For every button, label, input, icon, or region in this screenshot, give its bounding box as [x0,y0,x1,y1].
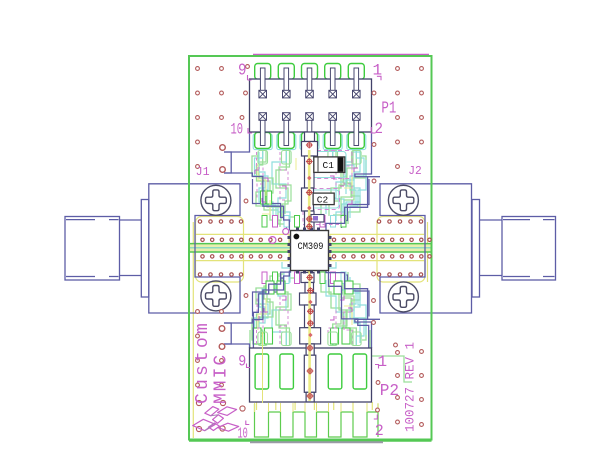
svg-text:10: 10 [231,121,244,139]
svg-text:Custom: Custom [193,320,213,404]
svg-text:10: 10 [238,426,248,443]
svg-text:C1: C1 [323,160,335,171]
svg-text:100727 REV 1: 100727 REV 1 [404,342,418,432]
svg-text:9: 9 [238,62,247,81]
svg-text:C2: C2 [317,195,329,206]
svg-text:2: 2 [375,120,384,138]
svg-text:J2: J2 [408,165,422,178]
svg-text:J1: J1 [196,166,210,179]
svg-text:MMIC: MMIC [212,353,232,404]
svg-text:P1: P1 [381,99,396,118]
svg-text:CM309: CM309 [298,241,324,253]
svg-text:P2: P2 [380,381,399,400]
svg-text:2: 2 [375,422,384,440]
svg-text:9: 9 [238,353,246,371]
